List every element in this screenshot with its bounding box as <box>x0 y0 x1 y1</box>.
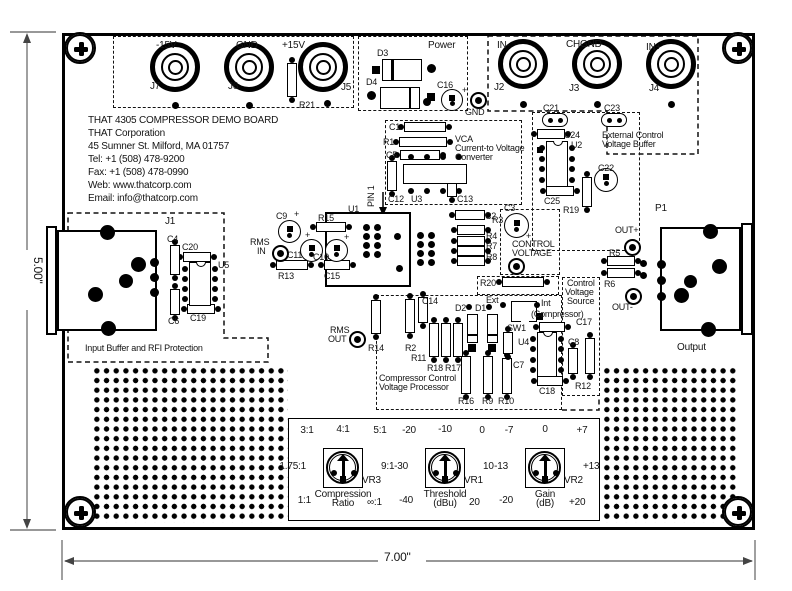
comp-u5-pin-l2 <box>182 286 188 292</box>
pad-dot-39 <box>417 259 424 266</box>
comp-c24 <box>537 129 565 139</box>
comp-u3-pin-t2 <box>440 154 446 160</box>
comp-r21-pad-t <box>289 57 295 63</box>
pot-vr2-scale-tl: -7 <box>505 426 514 437</box>
ref-c19: C19 <box>190 314 206 323</box>
comp-u3-pin-b2 <box>440 188 446 194</box>
ref-r6: R6 <box>604 280 615 289</box>
pot-vr2-caption-2: (dB) <box>536 499 554 510</box>
comp-r4-pad-l <box>451 238 457 244</box>
comp-r13-pad-l <box>270 262 276 268</box>
pot-vr2 <box>525 448 565 488</box>
ref-c12: C12 <box>388 195 404 204</box>
comp-r6 <box>607 268 635 278</box>
comp-c8-pad-b <box>570 374 576 380</box>
comp-d1 <box>487 314 498 343</box>
comp-r12-pad-t <box>587 332 593 338</box>
comp-r13-pad-r <box>308 262 314 268</box>
comp-r11-pad-t <box>431 317 437 323</box>
pot-vr2-scale-br: +20 <box>569 498 585 509</box>
comp-c19-pad-l <box>181 306 187 312</box>
pad-dot-7 <box>640 260 647 267</box>
ref-c22: C22 <box>598 164 614 173</box>
pad-rms-out <box>349 331 366 348</box>
comp-c4 <box>170 245 180 275</box>
pad-dot-17 <box>703 224 718 239</box>
comp-c5 <box>400 150 440 160</box>
comp-c14-pad-b <box>420 323 426 329</box>
pad-gnd <box>470 92 487 109</box>
comp-r12 <box>585 338 595 374</box>
pot-vr1-scale-l: -30 <box>394 462 408 473</box>
ref-r5: R5 <box>609 249 620 258</box>
jack-label-in-plus: IN+ <box>646 43 661 54</box>
comp-u2-pin-r3 <box>569 177 575 183</box>
mount-hole-br <box>722 496 754 528</box>
ref-r21: R21 <box>299 101 315 110</box>
pad-r8 <box>508 258 525 275</box>
comp-r2-pad-t <box>407 293 413 299</box>
comp-u3-pin-b1 <box>424 188 430 194</box>
jack-ref-j4: J4 <box>649 84 659 95</box>
ref-r1: R1 <box>383 138 394 147</box>
pot-vr2-scale-r: +13 <box>583 462 599 473</box>
ref-d2: D2 <box>455 304 466 313</box>
comp-r14 <box>371 300 381 334</box>
pad-dot-32 <box>374 251 381 258</box>
pad-dot-21 <box>701 322 716 337</box>
comp-c23 <box>601 113 627 127</box>
plus-c16: + <box>462 86 467 95</box>
comp-c20 <box>183 252 211 262</box>
comp-r19-pad-t <box>584 171 590 177</box>
ref-u4: U4 <box>518 338 529 347</box>
comp-r7 <box>457 246 485 256</box>
comp-u3-pin-t1 <box>424 154 430 160</box>
ref-c3: C3 <box>504 204 515 213</box>
comp-c2 <box>455 210 485 220</box>
comp-r2 <box>405 299 415 333</box>
ref-c16: C16 <box>437 81 453 90</box>
comp-u2 <box>546 141 568 187</box>
comp-r4 <box>457 236 485 246</box>
comp-c20-pad-r <box>211 254 217 260</box>
plus-c11: + <box>305 231 310 240</box>
ref-c10: C10 <box>313 253 329 262</box>
pot-vr3-ref: VR3 <box>362 476 381 487</box>
pot-vr3-caption-2: Ratio <box>332 499 354 510</box>
pot-vr1 <box>425 448 465 488</box>
pot-vr3-scale-r: 9:1 <box>381 462 394 473</box>
comp-c25-pad-l <box>540 188 546 194</box>
pad-dot-18 <box>712 259 727 274</box>
pad-dot-5 <box>594 101 601 108</box>
pad-dot-31 <box>363 251 370 258</box>
comp-r17 <box>453 323 463 357</box>
pad-dot-0 <box>172 102 179 109</box>
pad-dot-35 <box>417 241 424 248</box>
pot-vr1-ref: VR1 <box>464 476 483 487</box>
dim-arrow-right <box>743 557 753 565</box>
jack-ref-j2: J2 <box>494 83 504 94</box>
pad-dot-38 <box>428 250 435 257</box>
comp-c18 <box>537 376 563 386</box>
comp-u4-pin-r3 <box>558 367 564 373</box>
section-cvs-3: Source <box>567 297 594 306</box>
pot-vr2-scale-tr: +7 <box>576 426 587 437</box>
pad-dot-44 <box>367 91 376 100</box>
ref-r3: R3 <box>492 216 503 225</box>
ref-sw1: SW1 <box>507 324 526 333</box>
pad-dot-1 <box>246 102 253 109</box>
dim-arrow-up <box>23 33 31 43</box>
pot-vr3-scale-t: 4:1 <box>336 425 349 436</box>
pad-dot-14 <box>150 258 159 267</box>
comp-r1 <box>399 137 447 147</box>
dim-arrow-left <box>64 557 74 565</box>
pad-dot-12 <box>88 287 103 302</box>
plus-c9: + <box>294 210 299 219</box>
section-cvp-2: Voltage Processor <box>379 383 449 392</box>
comp-r18 <box>441 323 451 357</box>
pad-dot-4 <box>520 101 527 108</box>
ref-c21: C21 <box>543 104 559 113</box>
dim-width-label: 7.00" <box>384 551 411 564</box>
ref-c1: C1 <box>389 123 400 132</box>
pad-dot-48 <box>534 302 540 308</box>
comp-u5-pin-l0 <box>182 266 188 272</box>
pot-vr2-scale-t: 0 <box>542 425 547 436</box>
dim-height-label: 5.00" <box>31 257 44 284</box>
title-company: THAT Corporation <box>88 129 165 140</box>
mount-hole-tr <box>722 32 754 64</box>
comp-r19 <box>582 177 592 207</box>
ref-r19: R19 <box>563 206 579 215</box>
ref-j1: J1 <box>165 217 175 228</box>
comp-u5-pin-r2 <box>212 286 218 292</box>
comp-c23-p2 <box>617 118 622 123</box>
comp-c17 <box>539 322 565 332</box>
comp-u4 <box>537 332 557 377</box>
ref-c15: C15 <box>324 272 340 281</box>
comp-r14-pad-b <box>373 334 379 340</box>
pad-dot-27 <box>363 233 370 240</box>
comp-r1-pad-r <box>447 139 453 145</box>
title-address: 45 Sumner St. Milford, MA 01757 <box>88 142 229 153</box>
pot-vr1-scale-tr: 0 <box>479 426 484 437</box>
pad-label-rms-in-2: IN <box>257 247 266 256</box>
pot-vr3-scale-l: 1.75:1 <box>279 462 306 473</box>
pad-square-1 <box>427 93 435 101</box>
ref-c11: C11 <box>287 251 302 260</box>
pad-dot-25 <box>363 224 370 231</box>
comp-u4-pin-r0 <box>558 336 564 342</box>
pad-dot-9 <box>100 225 115 240</box>
comp-r3-pad-l <box>451 227 457 233</box>
ref-u5: U5 <box>218 261 229 270</box>
ref-c18: C18 <box>539 387 555 396</box>
comp-c21 <box>542 113 568 127</box>
ref-p1: P1 <box>655 204 667 215</box>
pad-dot-33 <box>417 232 424 239</box>
comp-u5-pin-r3 <box>212 296 218 302</box>
pad-dot-8 <box>640 272 647 279</box>
pad-label-gnd: GND <box>465 108 484 117</box>
comp-r15-pad-r <box>346 224 352 230</box>
ref-c6: C6 <box>168 317 179 326</box>
ref-u1: U1 <box>348 205 359 214</box>
comp-c1 <box>404 122 446 132</box>
pad-dot-16 <box>150 288 159 297</box>
title-web: Web: www.thatcorp.com <box>88 181 191 192</box>
comp-u5-pin-l1 <box>182 276 188 282</box>
ref-r15: R15 <box>318 214 334 223</box>
comp-c15-pad-r <box>350 262 356 268</box>
comp-c19-pad-r <box>215 306 221 312</box>
ref-c9: C9 <box>276 212 287 221</box>
pad-dot-29 <box>363 242 370 249</box>
comp-u3-pin-t0 <box>408 154 414 160</box>
pad-dot-36 <box>428 241 435 248</box>
ref-c14: C14 <box>422 297 438 306</box>
comp-u3 <box>403 164 467 184</box>
pad-dot-40 <box>428 259 435 266</box>
section-ext-buffer-2: Voltage Buffer <box>602 140 656 149</box>
connector-j1-edge <box>46 226 57 335</box>
comp-c21-p2 <box>558 118 563 123</box>
comp-r8 <box>457 256 485 266</box>
comp-c18-pad-r <box>563 378 569 384</box>
ref-r11: R11 <box>411 354 426 363</box>
pad-dot-47 <box>500 302 506 308</box>
comp-c12 <box>387 161 397 191</box>
jack-label-chgnd: CHGND <box>566 40 602 51</box>
connector-p1-edge <box>741 223 753 335</box>
comp-c16 <box>441 89 463 111</box>
connector-j1-body <box>57 230 157 331</box>
pad-label-out-plus: OUT+ <box>615 226 638 235</box>
jack-label-minus15v: -15V <box>156 41 176 52</box>
pad-dot-37 <box>417 250 424 257</box>
pad-dot-15 <box>150 273 159 282</box>
comp-r5-pad-l <box>601 258 607 264</box>
jack-ref-j7: J7 <box>150 82 160 93</box>
ref-c5: C5 <box>386 151 397 160</box>
pad-dot-23 <box>657 276 666 285</box>
jack-label-gnd: GND <box>236 41 258 52</box>
pad-out-plus <box>624 239 641 256</box>
comp-c25 <box>546 186 574 196</box>
comp-r16 <box>461 356 471 394</box>
comp-c6 <box>170 289 180 315</box>
pot-vr3 <box>323 448 363 488</box>
comp-u5-pin-l3 <box>182 296 188 302</box>
comp-c1-pad-r <box>446 124 452 130</box>
pot-vr2-scale-bl: -20 <box>499 496 513 507</box>
ref-r7: R7 <box>486 242 497 251</box>
comp-c7-pad-b <box>505 354 511 360</box>
dim-arrow-down <box>23 519 31 529</box>
pad-square-0 <box>372 66 380 74</box>
comp-c7 <box>503 332 513 354</box>
connector-p1-body <box>660 227 741 331</box>
comp-r15 <box>316 222 346 232</box>
comp-c21-p1 <box>548 118 553 123</box>
ref-c17: C17 <box>576 318 592 327</box>
pad-rms-in <box>272 245 289 262</box>
pad-square-2 <box>468 344 476 352</box>
comp-c17-pad-r <box>565 324 571 330</box>
pad-label-rms-out-2: OUT <box>328 335 346 344</box>
pot-vr3-scale-tr: 5:1 <box>373 426 386 437</box>
pad-dot-28 <box>374 233 381 240</box>
comp-r3 <box>457 225 485 235</box>
switch-label-int: Int <box>541 299 550 308</box>
ref-r8: R8 <box>486 253 497 262</box>
section-vca-3: Converter <box>455 153 493 162</box>
ref-c20: C20 <box>182 243 198 252</box>
ref-r20: R20 <box>480 279 496 288</box>
note-pin1: PIN 1 <box>367 185 376 207</box>
pot-vr1-scale-t: -10 <box>438 425 452 436</box>
comp-c2-pad-l <box>449 212 455 218</box>
comp-c6-pad-t <box>172 283 178 289</box>
pot-vr1-scale-br: 20 <box>469 498 480 509</box>
comp-r19-pad-b <box>584 207 590 213</box>
pad-dot-22 <box>657 260 666 269</box>
comp-r8-pad-l <box>451 258 457 264</box>
section-power: Power <box>428 41 455 52</box>
comp-r10 <box>502 358 512 394</box>
pad-dot-42 <box>396 265 403 272</box>
ref-c7: C7 <box>513 361 524 370</box>
ref-r10: R10 <box>498 397 514 406</box>
pad-dot-43 <box>427 64 436 73</box>
comp-d2 <box>467 314 478 343</box>
comp-d3 <box>382 59 422 81</box>
ref-d4: D4 <box>366 78 377 87</box>
pad-label-out-minus: OUT- <box>612 303 633 312</box>
pot-vr1-caption-2: (dBu) <box>433 499 456 510</box>
comp-c13-pad-b <box>449 197 455 203</box>
section-input-buffer: Input Buffer and RFI Protection <box>85 344 203 353</box>
ref-r16: R16 <box>458 397 474 406</box>
pad-dot-34 <box>428 232 435 239</box>
comp-r14-pad-t <box>373 294 379 300</box>
comp-r2-pad-b <box>407 333 413 339</box>
pot-vr2-scale-l: -13 <box>494 462 508 473</box>
pad-dot-10 <box>131 257 146 272</box>
pad-square-3 <box>488 344 496 352</box>
pad-dot-26 <box>374 224 381 231</box>
jack-ref-j6: J6 <box>228 82 238 93</box>
pot-vr1-scale-bl: -40 <box>399 496 413 507</box>
pad-dot-41 <box>394 233 401 240</box>
comp-u4-pin-l3 <box>530 367 536 373</box>
ref-d1: D1 <box>475 304 486 313</box>
jack-ref-j5: J5 <box>341 83 351 94</box>
ref-r14: R14 <box>368 344 384 353</box>
jack-ref-j3: J3 <box>569 84 579 95</box>
comp-c17-pad-l <box>533 324 539 330</box>
switch-label-ext: Ext <box>486 296 498 305</box>
pot-vr2-ref: VR2 <box>564 476 583 487</box>
comp-r13 <box>276 260 308 270</box>
ref-u2: U2 <box>571 141 582 150</box>
comp-c8 <box>568 348 578 374</box>
jack-label-plus15v: +15V <box>282 41 305 52</box>
ref-r13: R13 <box>278 272 294 281</box>
mount-hole-bl <box>64 496 96 528</box>
comp-u5 <box>189 262 211 306</box>
pad-dot-20 <box>674 288 689 303</box>
comp-r17-pad-t <box>455 317 461 323</box>
comp-r20-pad-r <box>544 279 550 285</box>
comp-u2-pin-l3 <box>539 177 545 183</box>
title-email: Email: info@thatcorp.com <box>88 194 198 205</box>
comp-r21-pad-b <box>289 97 295 103</box>
pot-vr3-scale-bl: 1:1 <box>298 496 311 507</box>
comp-c18-pad-l <box>531 378 537 384</box>
comp-r21 <box>287 63 297 97</box>
pot-vr1-scale-tl: -20 <box>402 426 416 437</box>
ref-c13: C13 <box>457 195 473 204</box>
pot-vr3-scale-tl: 3:1 <box>300 426 313 437</box>
comp-r20-pad-l <box>496 279 502 285</box>
pad-dot-11 <box>119 274 133 288</box>
pad-dot-45 <box>466 304 472 310</box>
comp-u2-pin-r1 <box>569 156 575 162</box>
title-fax: Fax: +1 (508) 478-0990 <box>88 168 188 179</box>
comp-d4 <box>380 87 420 109</box>
comp-r6-pad-l <box>601 270 607 276</box>
pad-dot-19 <box>684 275 697 288</box>
comp-u4-pin-l2 <box>530 357 536 363</box>
comp-u5-pin-r1 <box>212 276 218 282</box>
pad-square-5 <box>537 147 543 153</box>
plus-c10: + <box>344 233 349 242</box>
ref-r12: R12 <box>575 382 591 391</box>
comp-r9 <box>483 356 493 394</box>
comp-c24-pad-l <box>531 131 537 137</box>
comp-r20 <box>502 277 544 287</box>
title-board-name: THAT 4305 COMPRESSOR DEMO BOARD <box>88 116 278 127</box>
section-output: Output <box>677 343 706 354</box>
ref-d3: D3 <box>377 49 388 58</box>
jack-label-in-minus: IN- <box>497 41 510 52</box>
comp-r18-pad-t <box>443 317 449 323</box>
ref-r9: R9 <box>482 397 493 406</box>
mount-hole-tl <box>64 32 96 64</box>
ref-c4: C4 <box>167 235 178 244</box>
pad-dot-6 <box>668 101 675 108</box>
pad-dot-24 <box>657 292 666 301</box>
ref-c23: C23 <box>604 104 620 113</box>
pad-dot-30 <box>374 242 381 249</box>
comp-r11 <box>429 323 439 357</box>
comp-c25-pad-r <box>574 188 580 194</box>
comp-r12-pad-b <box>587 374 593 380</box>
comp-u4-pin-r2 <box>558 357 564 363</box>
ref-c25: C25 <box>544 197 560 206</box>
pad-dot-2 <box>324 100 331 107</box>
pcb-assembly-diagram: THAT 4305 COMPRESSOR DEMO BOARD THAT Cor… <box>0 0 792 591</box>
ref-u3: U3 <box>411 195 422 204</box>
pad-dot-13 <box>101 321 116 336</box>
comp-r7-pad-l <box>451 248 457 254</box>
comp-u2-pin-l1 <box>539 156 545 162</box>
comp-c4-pad-b <box>172 275 178 281</box>
